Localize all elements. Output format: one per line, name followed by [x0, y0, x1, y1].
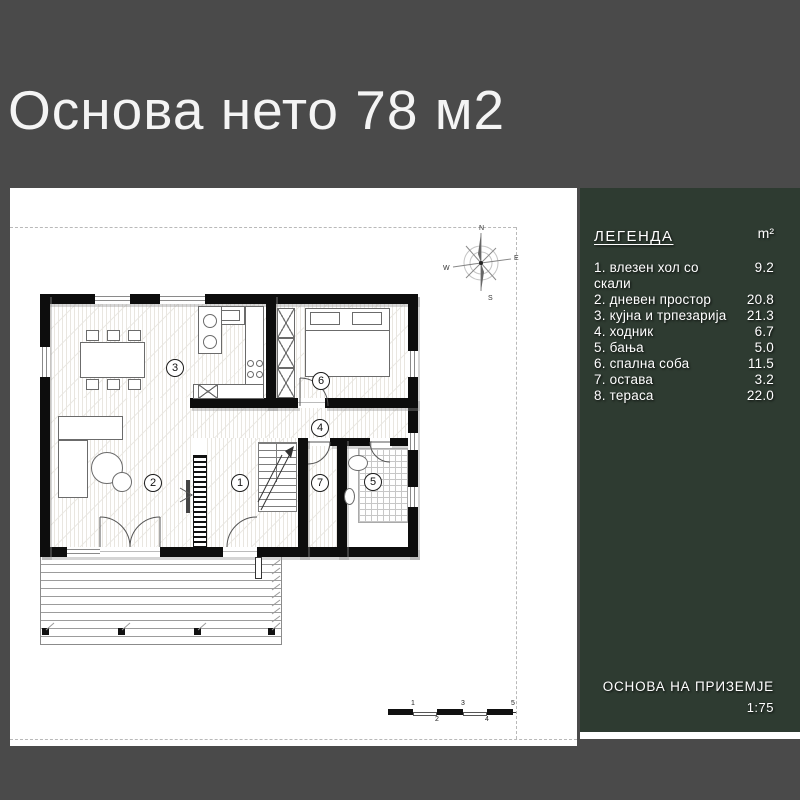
compass-label-north: N: [479, 225, 484, 232]
page-title: Основа нето 78 м2: [8, 78, 505, 142]
room-marker-3: 3: [166, 359, 184, 377]
scale-tick: 5: [511, 700, 515, 707]
legend-item-area: 6.7: [738, 324, 774, 340]
french-door-swing: [100, 517, 160, 547]
legend-panel: ЛЕГЕНДА m² 1. влезен хол со скали 9.2 2.…: [580, 188, 800, 739]
stair-arrow: [258, 446, 294, 510]
compass-rose: N E S W: [443, 225, 519, 302]
compass-label-south: S: [488, 295, 493, 302]
room-number: 6: [318, 375, 324, 387]
compass-label-west: W: [443, 265, 450, 272]
drawing-scale: 1:75: [747, 700, 774, 715]
legend-item-area: 9.2: [738, 260, 774, 292]
chevron-icon: [180, 488, 192, 502]
scale-bar-segment: [487, 709, 513, 715]
legend-item: 7. остава 3.2: [594, 372, 774, 388]
legend-item-area: 11.5: [738, 356, 774, 372]
scale-tick: 3: [461, 700, 465, 707]
room-marker-5: 5: [364, 473, 382, 491]
legend-items: 1. влезен хол со скали 9.2 2. дневен про…: [594, 260, 774, 404]
legend-item-area: 22.0: [738, 388, 774, 404]
legend-item-area: 20.8: [738, 292, 774, 308]
terrace-edge-marks: [46, 560, 280, 630]
bathroom-door-swing: [370, 442, 390, 462]
legend-item-area: 21.3: [738, 308, 774, 324]
room-number: 4: [317, 422, 323, 434]
entry-door-swing: [227, 517, 257, 547]
room-number: 7: [317, 477, 323, 489]
legend-item: 2. дневен простор 20.8: [594, 292, 774, 308]
scale-tick: 4: [485, 716, 489, 723]
legend-item-label: 1. влезен хол со скали: [594, 260, 738, 292]
legend-item: 3. кујна и трпезарија 21.3: [594, 308, 774, 324]
plan-sheet: N E S W 1 2 3 4 5 6 7 1: [10, 188, 577, 746]
room-marker-4: 4: [311, 419, 329, 437]
page-background: Основа нето 78 м2: [0, 0, 800, 800]
scale-bar: 1 2 3 4 5: [385, 698, 520, 724]
legend-item-label: 2. дневен простор: [594, 292, 738, 308]
room-number: 5: [370, 476, 376, 488]
legend-item-label: 8. тераса: [594, 388, 738, 404]
legend-item-label: 6. спална соба: [594, 356, 738, 372]
drawing-title: ОСНОВА НА ПРИЗЕМЈЕ: [603, 679, 774, 694]
scale-bar-segment: [463, 712, 487, 716]
scale-bar-segment: [437, 709, 463, 715]
legend-item-label: 7. остава: [594, 372, 738, 388]
scale-tick: 1: [411, 700, 415, 707]
room-number: 2: [150, 477, 156, 489]
plan-annotations: N E S W: [10, 188, 577, 746]
legend-item-area: 5.0: [738, 340, 774, 356]
scale-bar-segment: [413, 712, 437, 716]
legend-item: 4. ходник 6.7: [594, 324, 774, 340]
room-number: 3: [172, 362, 178, 374]
legend-item-label: 5. бања: [594, 340, 738, 356]
legend-item-label: 4. ходник: [594, 324, 738, 340]
legend-item: 5. бања 5.0: [594, 340, 774, 356]
legend-item-label: 3. кујна и трпезарија: [594, 308, 738, 324]
scale-tick: 2: [435, 716, 439, 723]
compass-label-east: E: [514, 255, 519, 262]
room-marker-1: 1: [231, 474, 249, 492]
legend-unit-label: m²: [758, 225, 774, 241]
legend-item: 6. спална соба 11.5: [594, 356, 774, 372]
storage-door-swing: [308, 442, 330, 464]
legend-item: 1. влезен хол со скали 9.2: [594, 260, 774, 292]
legend-heading: ЛЕГЕНДА: [594, 228, 673, 245]
scale-bar-segment: [388, 709, 413, 715]
floor-plan: N E S W 1 2 3 4 5 6 7 1: [10, 188, 577, 746]
room-marker-7: 7: [311, 474, 329, 492]
room-marker-2: 2: [144, 474, 162, 492]
legend-item-area: 3.2: [738, 372, 774, 388]
room-marker-6: 6: [312, 372, 330, 390]
room-number: 1: [237, 477, 243, 489]
legend-item: 8. тераса 22.0: [594, 388, 774, 404]
